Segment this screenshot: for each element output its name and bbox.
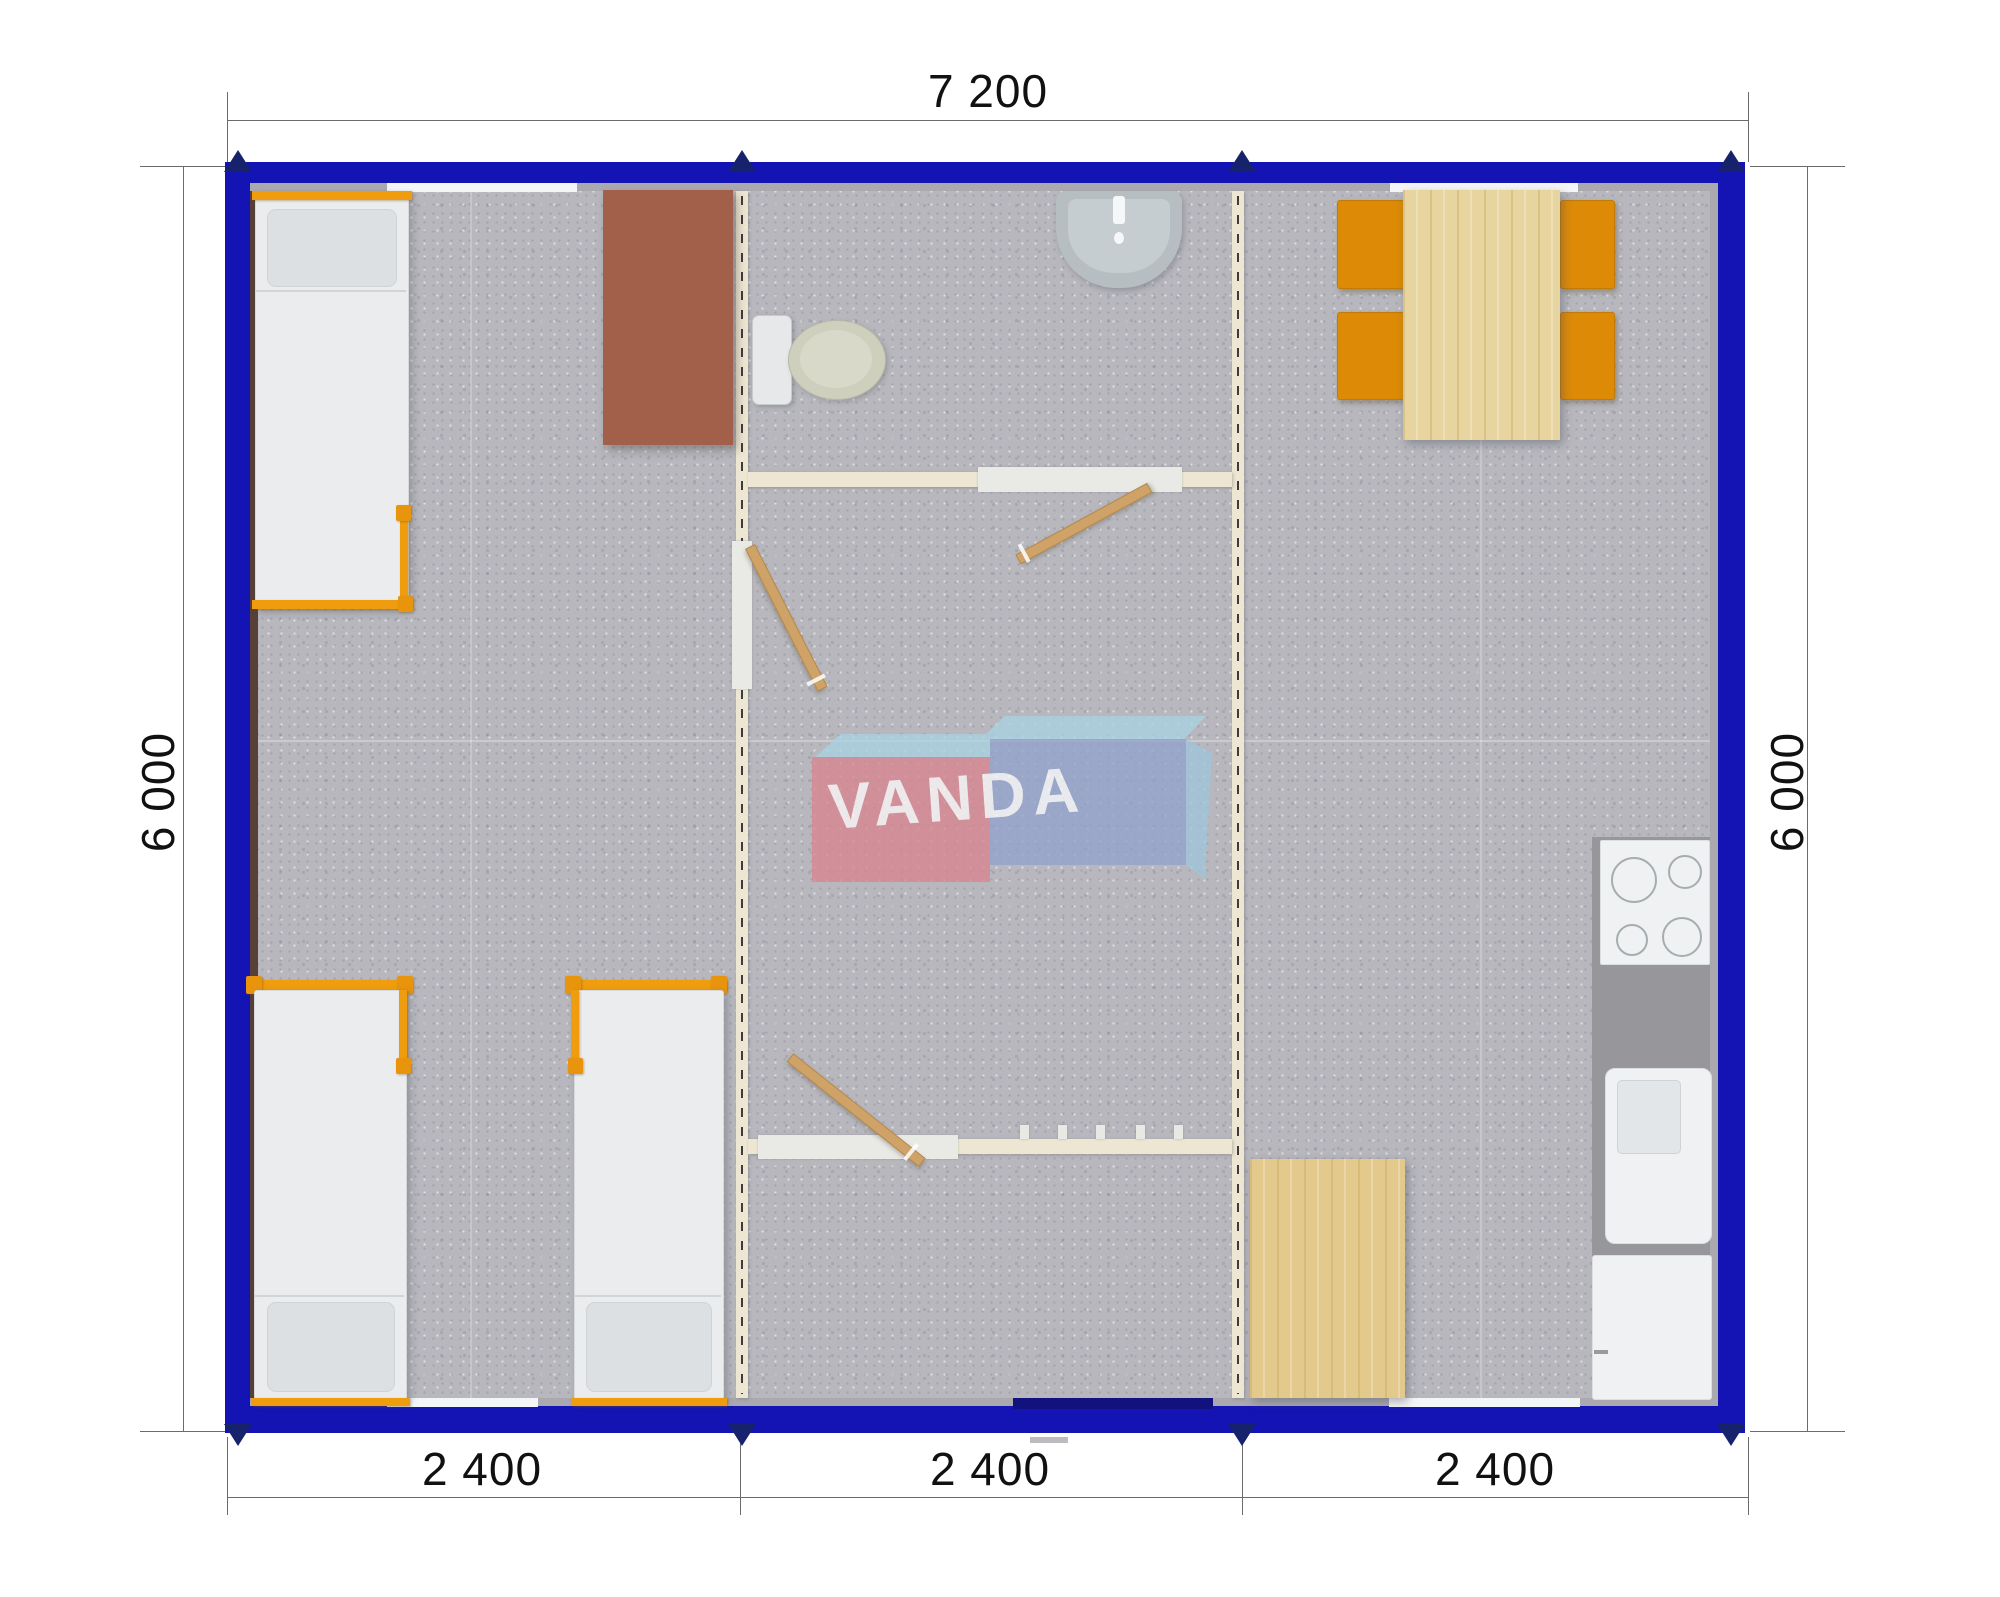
top-dimension-tick-right	[1748, 92, 1749, 162]
burner-icon	[1662, 917, 1702, 957]
window-top-left-room	[387, 183, 577, 192]
bottom-dimension-line	[227, 1497, 1748, 1498]
module-marker-arrow	[728, 150, 756, 172]
refrigerator	[1592, 1255, 1712, 1400]
dining-chair	[1560, 200, 1615, 289]
left-dimension-label: 6 000	[131, 692, 185, 892]
bed-rail	[252, 191, 412, 200]
module-marker-arrow	[224, 150, 252, 172]
module-marker-arrow	[1228, 1424, 1256, 1446]
bottom-dimension-label-2: 2 400	[890, 1442, 1090, 1496]
top-dimension-label: 7 200	[888, 64, 1088, 118]
dining-chair	[1337, 200, 1405, 289]
right-dimension-tick-top	[1750, 166, 1845, 167]
bed-rail	[248, 980, 412, 990]
burner-icon	[1668, 855, 1702, 889]
bathroom-door-opening	[978, 467, 1182, 492]
entry-wood-mat	[1250, 1159, 1405, 1398]
exterior-wall-right	[1718, 162, 1745, 1433]
hall-door-opening	[758, 1135, 958, 1159]
toilet-bowl-inner	[800, 330, 872, 388]
bed-post	[568, 1058, 583, 1074]
dining-table	[1403, 190, 1560, 440]
entrance-step	[1030, 1437, 1068, 1443]
bed-pillow	[267, 1302, 395, 1392]
bed-rail	[252, 600, 412, 609]
bed-fold-line	[575, 1295, 721, 1297]
top-dimension-line	[227, 120, 1748, 121]
desk	[603, 190, 733, 445]
bedroom-door-opening	[732, 541, 752, 689]
bed-rail	[400, 515, 408, 605]
right-dimension-label: 6 000	[1760, 692, 1814, 892]
exterior-wall-top	[225, 162, 1745, 183]
module-marker-arrow	[728, 1424, 756, 1446]
bed-rail	[571, 1398, 727, 1406]
bed-post	[396, 1058, 411, 1074]
kitchen-sink-basin	[1617, 1080, 1681, 1154]
bed-rail	[567, 980, 727, 990]
partition-centerline-left	[741, 196, 743, 1394]
faucet-icon	[1113, 196, 1125, 224]
bed-fold-line	[256, 290, 406, 292]
bottom-dimension-tick-2	[740, 1437, 741, 1515]
bed-pillow	[586, 1302, 712, 1392]
faucet-icon	[1114, 232, 1124, 244]
module-marker-arrow	[1228, 150, 1256, 172]
floor-plan: 7 200 6 000 6 000 2 400 2 400 2 400	[0, 0, 2000, 1597]
bottom-dimension-label-3: 2 400	[1395, 1442, 1595, 1496]
burner-icon	[1611, 857, 1657, 903]
bed-post	[396, 505, 411, 521]
burner-icon	[1616, 924, 1648, 956]
logo-box-top-face	[980, 716, 1206, 740]
left-dimension-tick-top	[140, 166, 235, 167]
module-marker-arrow	[1717, 1424, 1745, 1446]
entrance-door	[1013, 1398, 1213, 1409]
right-dimension-tick-bottom	[1750, 1431, 1845, 1432]
wall-hook	[1174, 1125, 1183, 1139]
wall-hook	[1136, 1125, 1145, 1139]
window-bottom-right-room	[1389, 1398, 1580, 1407]
partition-centerline-right	[1237, 196, 1239, 1394]
floor-seam	[470, 191, 472, 1398]
bed-pillow	[267, 209, 397, 287]
toilet-tank	[752, 315, 792, 405]
bed-post	[398, 596, 413, 612]
bottom-dimension-tick-1	[227, 1437, 228, 1515]
exterior-wall-left	[225, 162, 250, 1433]
wall-hook	[1058, 1125, 1067, 1139]
exterior-wall-bottom	[225, 1406, 1745, 1433]
dining-chair	[1337, 312, 1405, 400]
module-marker-arrow	[224, 1424, 252, 1446]
bottom-dimension-tick-4	[1748, 1437, 1749, 1515]
bottom-dimension-tick-3	[1242, 1437, 1243, 1515]
dining-chair	[1560, 312, 1615, 400]
left-dimension-tick-bottom	[140, 1431, 235, 1432]
wall-hook	[1020, 1125, 1029, 1139]
watermark-logo: VANDA	[810, 712, 1190, 890]
wall-hook	[1096, 1125, 1105, 1139]
module-marker-arrow	[1717, 150, 1745, 172]
bed-rail	[252, 1398, 410, 1406]
refrigerator-handle	[1594, 1350, 1608, 1354]
bottom-dimension-label-1: 2 400	[382, 1442, 582, 1496]
bed-fold-line	[255, 1295, 404, 1297]
